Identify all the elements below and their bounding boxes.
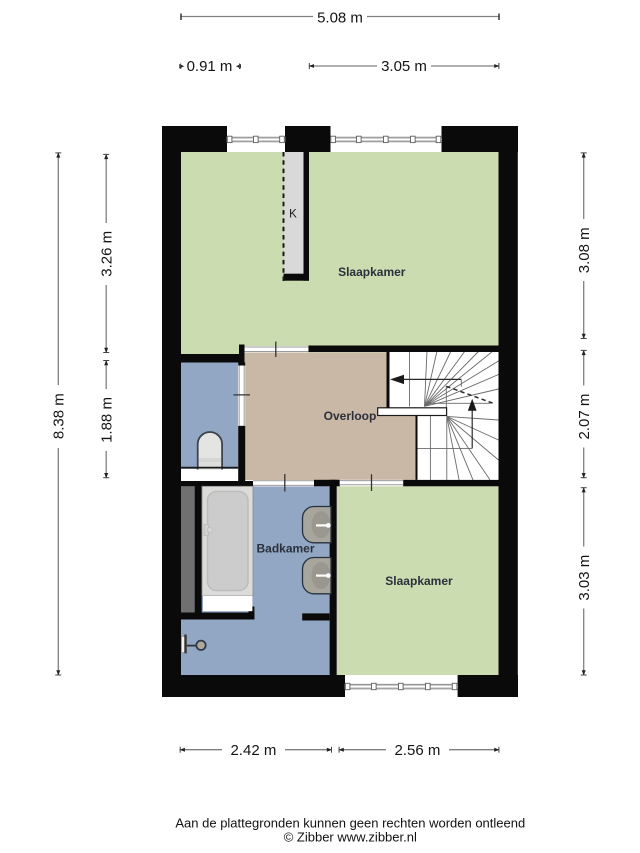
svg-text:2.42 m: 2.42 m (230, 742, 276, 759)
svg-text:8.38 m: 8.38 m (51, 393, 68, 439)
svg-text:K: K (289, 209, 297, 221)
svg-text:2.56 m: 2.56 m (394, 742, 440, 759)
svg-text:Aan de plattegronden kunnen ge: Aan de plattegronden kunnen geen rechten… (175, 816, 525, 831)
svg-text:0.91 m: 0.91 m (187, 58, 233, 75)
svg-text:3.26 m: 3.26 m (99, 231, 116, 277)
svg-text:3.03 m: 3.03 m (576, 555, 593, 601)
svg-text:Badkamer: Badkamer (256, 541, 314, 555)
svg-text:© Zibber www.zibber.nl: © Zibber www.zibber.nl (284, 830, 417, 845)
svg-text:Overloop: Overloop (324, 409, 377, 423)
svg-text:3.08 m: 3.08 m (576, 227, 593, 273)
svg-text:3.05 m: 3.05 m (381, 58, 427, 75)
svg-text:2.07 m: 2.07 m (576, 394, 593, 440)
svg-text:Slaapkamer: Slaapkamer (385, 574, 453, 588)
svg-text:1.88 m: 1.88 m (99, 397, 116, 443)
svg-text:Slaapkamer: Slaapkamer (338, 265, 406, 279)
svg-text:5.08 m: 5.08 m (317, 10, 363, 27)
